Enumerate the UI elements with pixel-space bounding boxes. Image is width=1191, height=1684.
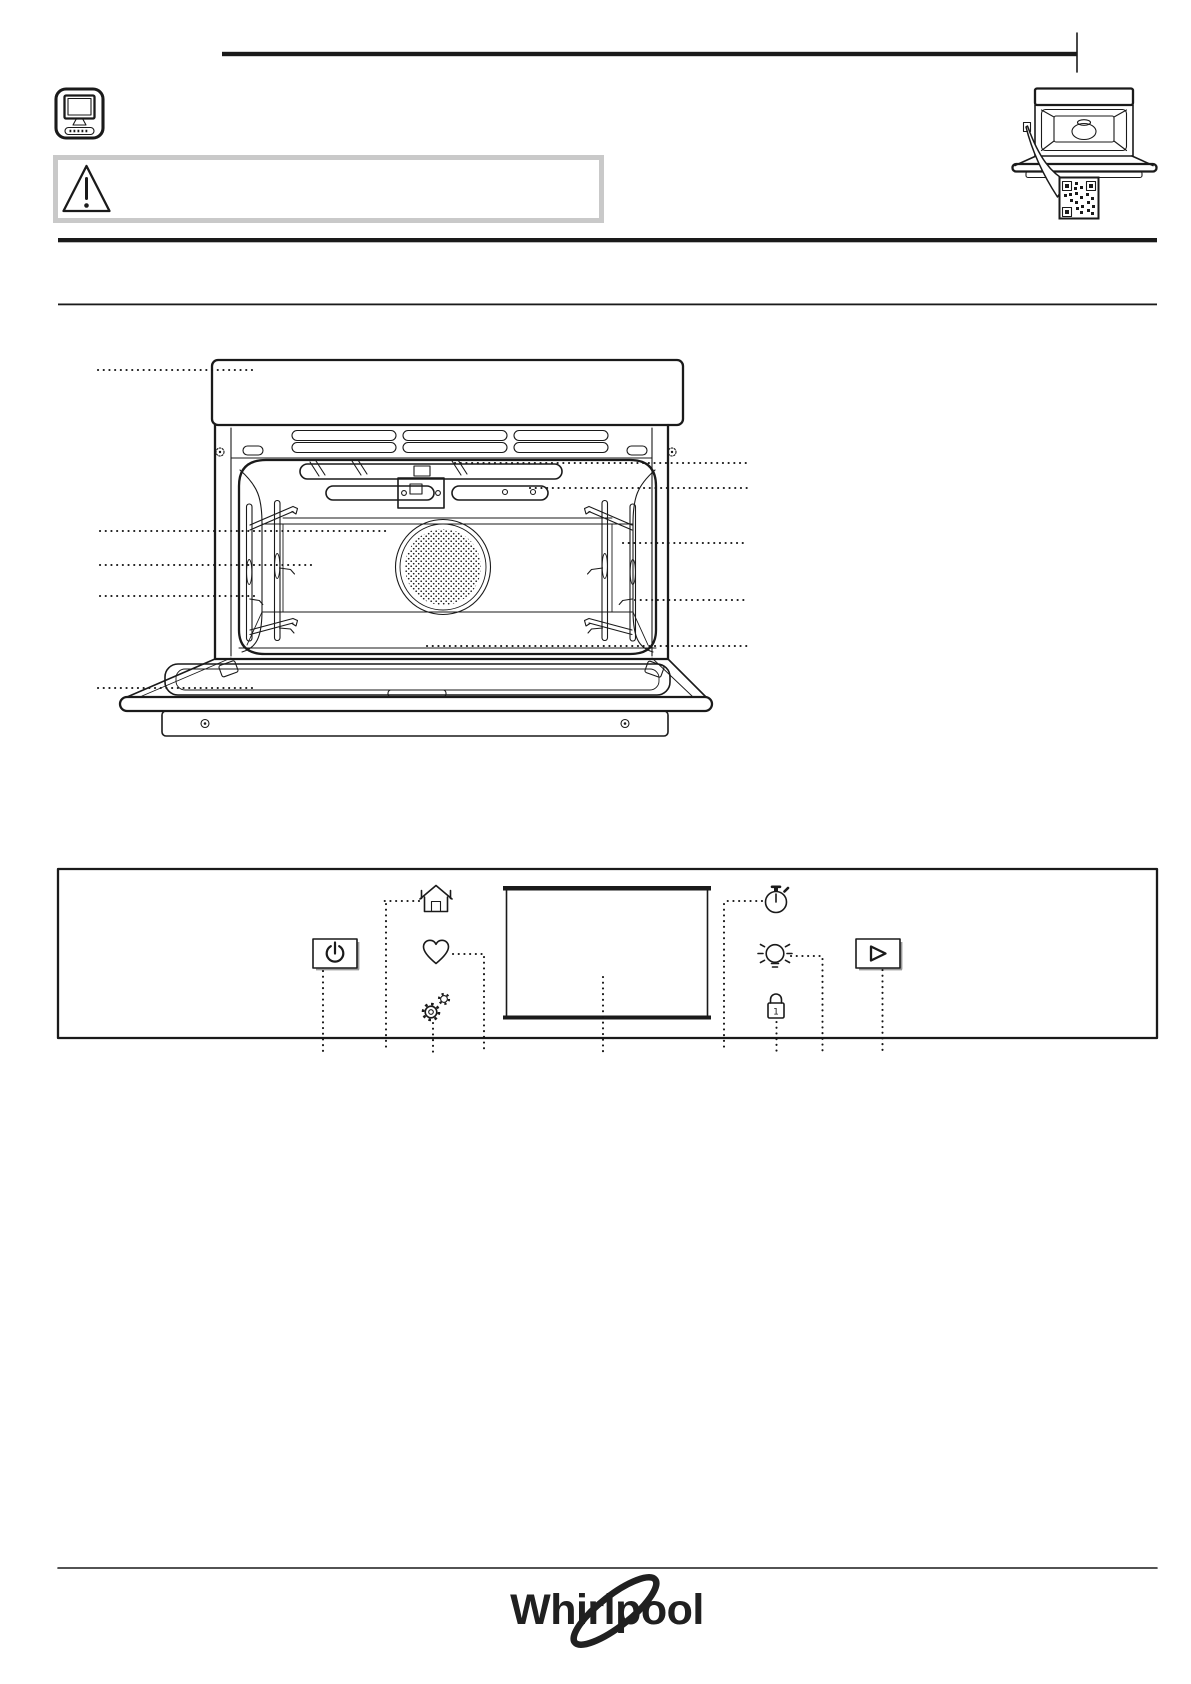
gears-icon (423, 994, 449, 1020)
header-rule (222, 33, 1077, 72)
control-panel-frame (58, 869, 1157, 1038)
manual-page: 1 Whirlpool (0, 0, 1191, 1684)
warning-box (56, 158, 602, 221)
light-button[interactable] (758, 945, 792, 968)
section-rule-thin (58, 304, 1157, 306)
power-button[interactable] (313, 939, 359, 970)
control-panel-band (212, 360, 683, 425)
display-screen[interactable] (503, 886, 711, 1020)
shelf-rack-right (585, 501, 636, 642)
grill-element (300, 460, 562, 508)
section-rule-thick (58, 238, 1157, 242)
qr-code (1060, 178, 1099, 219)
oven-front-diagram (98, 360, 747, 736)
lock-icon: 1 (768, 994, 784, 1018)
play-icon (871, 947, 886, 961)
settings-button[interactable] (423, 994, 449, 1020)
computer-monitor-icon (56, 89, 103, 138)
shelf-rack-left (247, 501, 298, 642)
whirlpool-logo: Whirlpool (510, 1567, 704, 1654)
timer-button[interactable] (766, 887, 789, 913)
ventilation-slots (243, 431, 647, 456)
power-icon (327, 943, 344, 962)
lock-digit: 1 (773, 1008, 779, 1018)
brand-logo-text: Whirlpool (510, 1586, 704, 1634)
home-button[interactable] (420, 886, 452, 912)
fan-cover (396, 520, 491, 615)
control-panel-figure: 1 (58, 869, 1157, 1052)
footer: Whirlpool (58, 1567, 1157, 1654)
key-lock-button[interactable]: 1 (768, 994, 784, 1018)
home-icon (420, 886, 452, 912)
timer-icon (766, 887, 789, 913)
panel-callout-lines (323, 901, 883, 1052)
base-plinth (162, 711, 668, 736)
heart-icon (424, 940, 449, 963)
open-door (120, 658, 712, 736)
start-button[interactable] (856, 939, 902, 970)
light-bulb-icon (758, 945, 792, 968)
favorite-button[interactable] (424, 940, 449, 963)
oven-page-curl-icon (1013, 89, 1157, 219)
